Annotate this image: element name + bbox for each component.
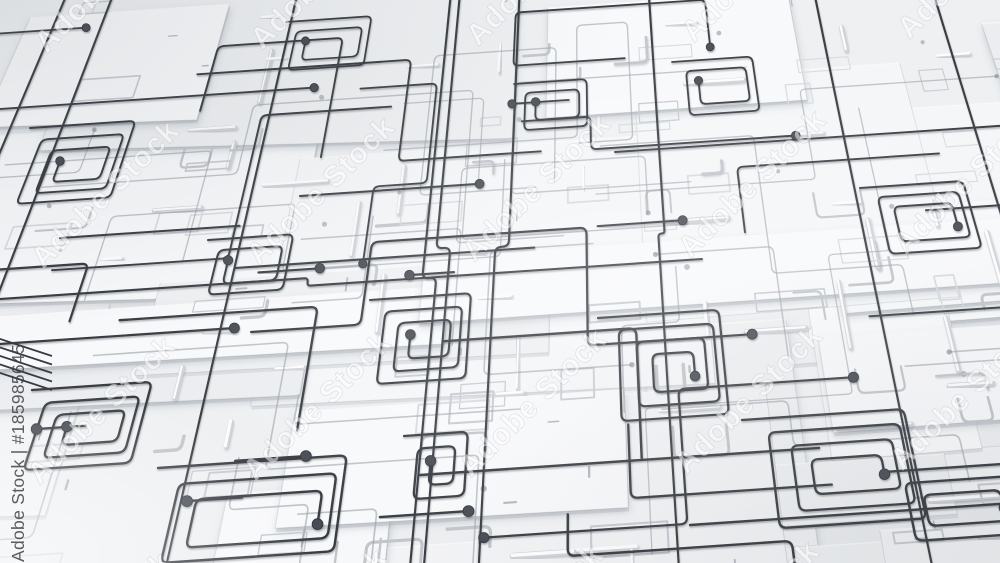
stock-photo-preview: Adobe StockAdobe StockAdobe StockAdobe S… (0, 0, 1000, 563)
lighting-layer (0, 0, 1000, 563)
circuit-board-render (0, 0, 1000, 563)
vignette-bottom-left-bright (0, 0, 1000, 563)
